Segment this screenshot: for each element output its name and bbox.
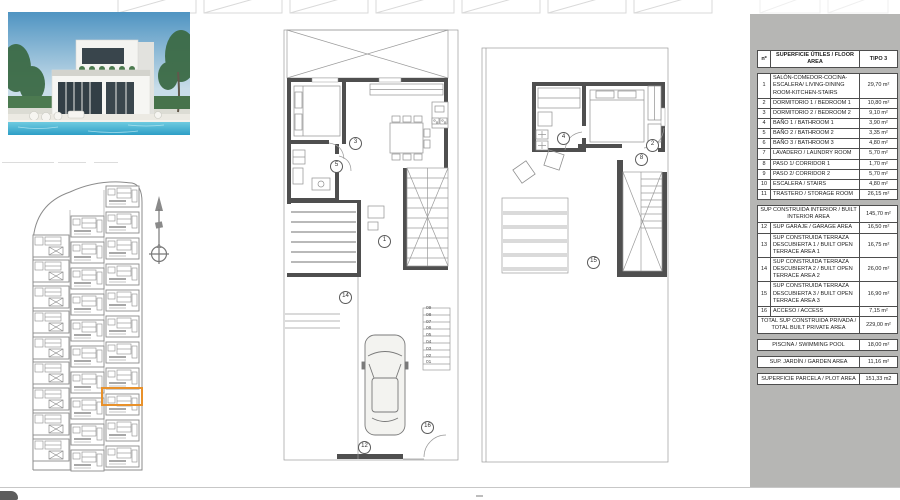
floor-area-area: 4,80 m²: [860, 139, 898, 149]
ground-floor-plan: [282, 26, 464, 466]
floor-area-desc: ESCALERA / STAIRS: [771, 179, 860, 189]
built-area-n: 14: [758, 257, 771, 281]
floor-area-desc: BAÑO 2 / BATHROOM 2: [771, 129, 860, 139]
room-number-marker: 5: [330, 160, 343, 173]
pool-desc: PISCINA / SWIMMING POOL: [758, 340, 860, 351]
room-number-marker: 16: [421, 421, 434, 434]
logo-fragment: [0, 491, 18, 500]
room-number-marker: 4: [557, 132, 570, 145]
pergola: [502, 198, 568, 273]
floor-area-row: 4BAÑO 1 / BATHROOM 13,90 m²: [758, 118, 898, 128]
areas-table-main: 1SALÓN-COMEDOR-COCINA-ESCALERA/ LIVING-D…: [757, 73, 898, 200]
floor-area-row: 10ESCALERA / STAIRS4,80 m²: [758, 179, 898, 189]
storage-shelves: [291, 212, 356, 262]
built-area-area: 7,15 m²: [860, 306, 898, 316]
floor-area-n: 11: [758, 189, 771, 199]
floor-area-n: 1: [758, 74, 771, 98]
dining-table: [390, 116, 430, 160]
built-area-area: 16,90 m²: [860, 282, 898, 306]
floor-area-row: 3DORMITORIO 2 / BEDROOM 29,10 m²: [758, 108, 898, 118]
floor-area-desc: LAVADERO / LAUNDRY ROOM: [771, 149, 860, 159]
built-area-row: 12SUP GARAJE / GARAGE AREA16,50 m²: [758, 223, 898, 233]
built-area-row: 14SUP CONSTRUIDA TERRAZA DESCUBIERTA 2 /…: [758, 257, 898, 281]
built-area-row: 16ACCESO / ACCESS7,15 m²: [758, 306, 898, 316]
col-header-desc: SUPERFICIE ÚTILES / FLOOR AREA: [771, 51, 860, 68]
floor-area-desc: BAÑO 3 / BATHROOM 3: [771, 139, 860, 149]
total-desc: TOTAL SUP CONSTRUIDA PRIVADA / TOTAL BUI…: [758, 316, 860, 333]
stair-step-labels: 0908 0706 0504 0302 01: [426, 306, 431, 367]
col-header-num: nº: [758, 51, 771, 68]
room-number-marker: 15: [587, 256, 600, 269]
col-header-tipo: TIPO 3: [860, 51, 898, 68]
north-arrow-icon: [149, 196, 169, 264]
floor-area-row: 11TRASTERO / STORAGE ROOM26,15 m²: [758, 189, 898, 199]
plot-desc: SUPERFICIE PARCELA / PLOT AREA: [758, 374, 860, 385]
areas-table-header: nº SUPERFICIE ÚTILES / FLOOR AREA TIPO 3: [757, 50, 898, 68]
floor-area-row: 6BAÑO 3 / BATHROOM 34,80 m²: [758, 139, 898, 149]
floor-area-row: 1SALÓN-COMEDOR-COCINA-ESCALERA/ LIVING-D…: [758, 74, 898, 98]
site-plan: [20, 150, 180, 488]
floor-area-row: 8PASO 1/ CORRIDOR 11,70 m²: [758, 159, 898, 169]
plot-row-table: SUPERFICIE PARCELA / PLOT AREA 151,33 m2: [757, 373, 898, 385]
room-number-marker: 14: [339, 291, 352, 304]
built-area-desc: SUP CONSTRUIDA TERRAZA DESCUBIERTA 2 / B…: [771, 257, 860, 281]
pool-area: 18,00 m²: [860, 340, 898, 351]
floor-area-row: 2DORMITORIO 1 / BEDROOM 110,80 m²: [758, 98, 898, 108]
floor-area-desc: PASO 1/ CORRIDOR 1: [771, 159, 860, 169]
plot-area: 151,33 m2: [860, 374, 898, 385]
floor-area-area: 5,70 m²: [860, 169, 898, 179]
floor-area-area: 1,70 m²: [860, 159, 898, 169]
built-area-desc: SUP CONSTRUIDA TERRAZA DESCUBIERTA 1 / B…: [771, 233, 860, 257]
plan-sheet: 3 5 1 14 12 16 4 2 8 15 0908 0706 0504 0…: [0, 0, 900, 500]
room-number-marker: 2: [646, 139, 659, 152]
total-row: TOTAL SUP CONSTRUIDA PRIVADA / TOTAL BUI…: [758, 316, 898, 333]
room-number-marker: 8: [635, 153, 648, 166]
floor-area-area: 26,15 m²: [860, 189, 898, 199]
floor-area-n: 10: [758, 179, 771, 189]
floor-area-desc: DORMITORIO 1 / BEDROOM 1: [771, 98, 860, 108]
sun-loungers: [513, 150, 564, 183]
floor-area-n: 4: [758, 118, 771, 128]
floor-area-area: 9,10 m²: [860, 108, 898, 118]
floor-area-row: 9PASO 2/ CORRIDOR 25,70 m²: [758, 169, 898, 179]
villa-photo: [8, 12, 190, 135]
floor-area-area: 29,70 m²: [860, 74, 898, 98]
subtotal-desc: SUP CONSTRUIDA INTERIOR / BUILT INTERIOR…: [758, 206, 860, 223]
total-area: 229,00 m²: [860, 316, 898, 333]
built-area-row: 15SUP CONSTRUIDA TERRAZA DESCUBIERTA 3 /…: [758, 282, 898, 306]
floor-area-desc: DORMITORIO 2 / BEDROOM 2: [771, 108, 860, 118]
stairs: [623, 172, 662, 271]
floor-area-area: 3,90 m²: [860, 118, 898, 128]
floor-area-row: 7LAVADERO / LAUNDRY ROOM5,70 m²: [758, 149, 898, 159]
bed: [294, 86, 340, 136]
stairs: [407, 168, 448, 266]
built-area-n: 15: [758, 282, 771, 306]
floor-area-desc: BAÑO 1 / BATHROOM 1: [771, 118, 860, 128]
areas-table: nº SUPERFICIE ÚTILES / FLOOR AREA TIPO 3…: [757, 50, 897, 390]
garden-row: SUP. JARDÍN / GARDEN AREA 11,16 m²: [758, 357, 898, 368]
areas-table-built: SUP CONSTRUIDA INTERIOR / BUILT INTERIOR…: [757, 205, 898, 334]
sheet-divider: [0, 487, 900, 488]
floor-area-desc: SALÓN-COMEDOR-COCINA-ESCALERA/ LIVING-DI…: [771, 74, 860, 98]
floor-area-n: 6: [758, 139, 771, 149]
built-area-desc: SUP GARAJE / GARAGE AREA: [771, 223, 860, 233]
floor-area-n: 9: [758, 169, 771, 179]
garden-row-table: SUP. JARDÍN / GARDEN AREA 11,16 m²: [757, 356, 898, 368]
floor-area-area: 4,80 m²: [860, 179, 898, 189]
floor-area-n: 3: [758, 108, 771, 118]
floor-area-n: 5: [758, 129, 771, 139]
floor-area-desc: TRASTERO / STORAGE ROOM: [771, 189, 860, 199]
built-area-area: 16,75 m²: [860, 233, 898, 257]
floor-area-row: 5BAÑO 2 / BATHROOM 23,35 m²: [758, 129, 898, 139]
tick-mark: [476, 495, 483, 497]
floor-area-n: 8: [758, 159, 771, 169]
floor-area-area: 5,70 m²: [860, 149, 898, 159]
garden-desc: SUP. JARDÍN / GARDEN AREA: [758, 357, 860, 368]
first-floor-plan: [478, 40, 674, 470]
pool-row-table: PISCINA / SWIMMING POOL 18,00 m²: [757, 339, 898, 351]
garden-area: 11,16 m²: [860, 357, 898, 368]
floor-area-desc: PASO 2/ CORRIDOR 2: [771, 169, 860, 179]
subtotal-area: 145,70 m²: [860, 206, 898, 223]
built-area-n: 12: [758, 223, 771, 233]
bed: [590, 86, 661, 142]
floor-area-area: 10,80 m²: [860, 98, 898, 108]
room-number-marker: 12: [358, 441, 371, 454]
sofa: [368, 206, 384, 230]
built-area-n: 16: [758, 306, 771, 316]
built-area-area: 26,00 m²: [860, 257, 898, 281]
plot-row: SUPERFICIE PARCELA / PLOT AREA 151,33 m2: [758, 374, 898, 385]
built-area-desc: ACCESO / ACCESS: [771, 306, 860, 316]
built-area-row: 13SUP CONSTRUIDA TERRAZA DESCUBIERTA 1 /…: [758, 233, 898, 257]
floor-area-n: 7: [758, 149, 771, 159]
subtotal-row: SUP CONSTRUIDA INTERIOR / BUILT INTERIOR…: [758, 206, 898, 223]
bathroom-fixtures: [293, 150, 330, 190]
floor-area-area: 3,35 m²: [860, 129, 898, 139]
car: [362, 335, 408, 435]
room-number-marker: 1: [378, 235, 391, 248]
built-area-area: 16,50 m²: [860, 223, 898, 233]
open-terrace-x: [287, 30, 448, 78]
built-area-desc: SUP CONSTRUIDA TERRAZA DESCUBIERTA 3 / B…: [771, 282, 860, 306]
room-number-marker: 3: [349, 137, 362, 150]
floor-area-n: 2: [758, 98, 771, 108]
built-area-n: 13: [758, 233, 771, 257]
pool-row: PISCINA / SWIMMING POOL 18,00 m²: [758, 340, 898, 351]
